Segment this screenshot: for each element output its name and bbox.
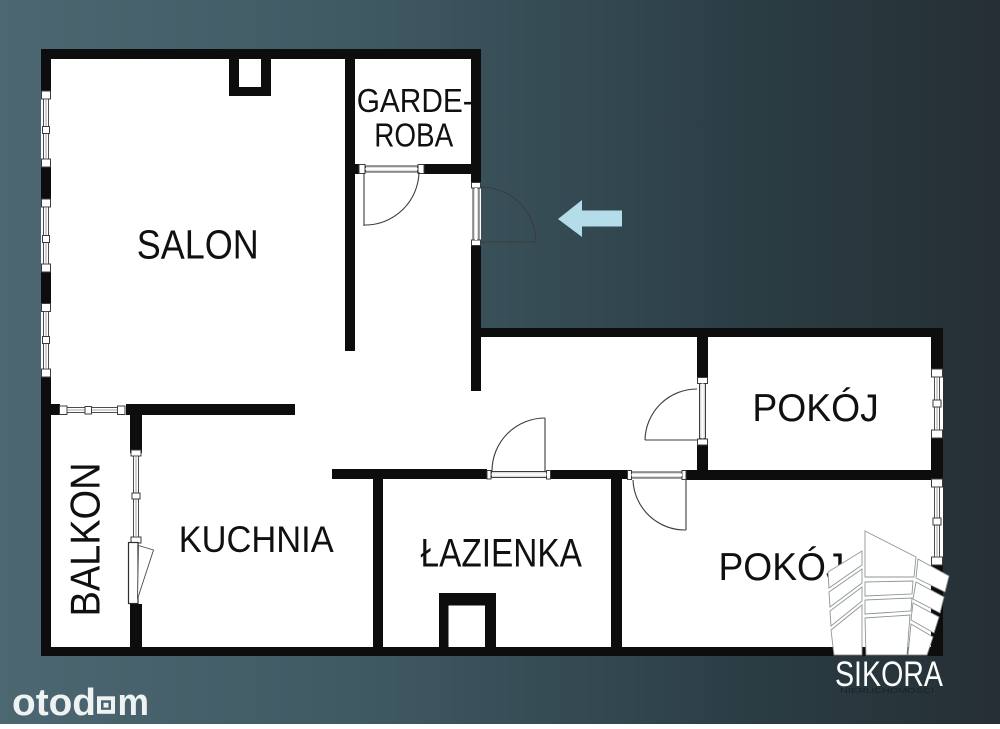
svg-text:otod: otod <box>12 682 96 724</box>
svg-text:ROBA: ROBA <box>374 117 454 154</box>
svg-text:SALON: SALON <box>137 222 259 268</box>
svg-text:POKÓJ: POKÓJ <box>719 546 845 589</box>
svg-text:POKÓJ: POKÓJ <box>752 387 879 430</box>
svg-text:KUCHNIA: KUCHNIA <box>179 518 334 560</box>
svg-text:NIERUCHOMOŚCI: NIERUCHOMOŚCI <box>840 686 934 695</box>
svg-text:BALKON: BALKON <box>62 463 109 617</box>
svg-text:GARDE-: GARDE- <box>357 83 473 120</box>
svg-text:ŁAZIENKA: ŁAZIENKA <box>421 532 583 576</box>
svg-text:m: m <box>118 682 150 724</box>
